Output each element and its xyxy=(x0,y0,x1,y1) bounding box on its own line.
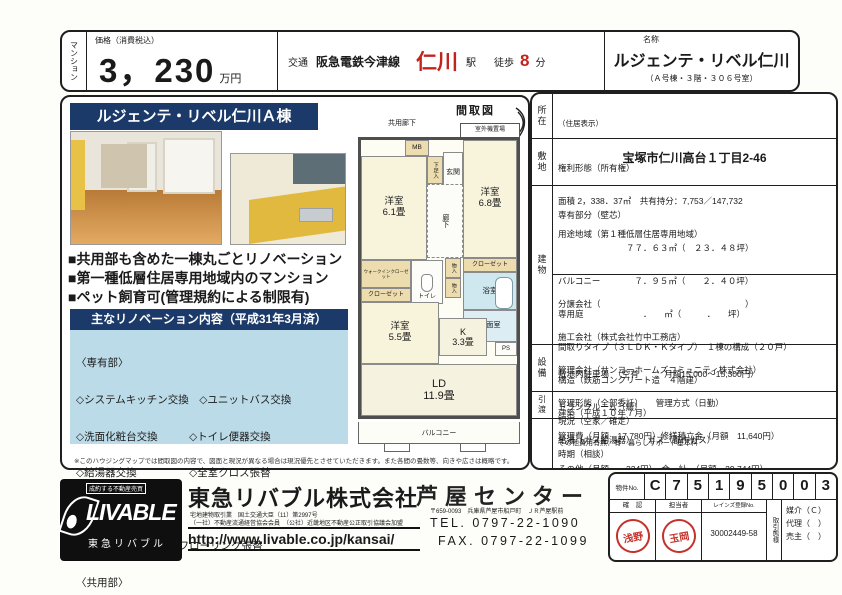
room-hallway: 廊下 xyxy=(427,184,463,258)
footer-company: 東急リバブル株式会社 xyxy=(188,481,418,513)
room-label: クローゼット xyxy=(472,262,508,269)
room-size: 11.9畳 xyxy=(423,390,455,402)
room-closet-b: クローゼット xyxy=(463,258,517,272)
main-left-box: ルジェンテ・リベル仁川Ａ棟 ■共用部も含めた一棟丸ごとリノベーション ■第一種低… xyxy=(60,95,530,470)
price-value: 3，230 xyxy=(99,44,215,92)
room-label: LD xyxy=(432,378,446,390)
floorplan-outline: MB 洋室 6.1畳 下足入 玄関 廊下 洋室 6.8畳 クローゼット 物入 xyxy=(358,137,520,419)
row-location: 所在 （住居表示） 宝塚市仁川高台１丁目2-46 xyxy=(532,94,836,139)
facility-line: エレベータ（ＥＶ有） xyxy=(558,468,831,470)
land-line: 権利形態（所有権） xyxy=(558,163,831,174)
reno-line: ◇洗面化粧台交換 ◇トイレ便器交換 xyxy=(76,431,342,443)
footer-fax: FAX. 0797-22-1099 xyxy=(438,534,589,548)
outdoor-unit-label: 室外機置場 xyxy=(460,123,520,138)
photo-living-wall xyxy=(101,144,147,188)
plan-disclaimer: ※このハウジングマップでは間取図の内容で、図面と現況が異なる場合は現況優先とさせ… xyxy=(74,455,524,465)
property-no-digit: 0 xyxy=(794,474,815,499)
facility-line: 敷地内駐車場 （空有 ：月額15,000～15,300円） xyxy=(558,369,831,380)
bathtub-icon xyxy=(495,277,513,309)
property-no-digit: 5 xyxy=(688,474,709,499)
balcony-notch xyxy=(460,444,486,452)
row-location-label: 所在 xyxy=(532,94,553,138)
property-no-digit: C xyxy=(645,474,666,499)
room-label: クローゼット xyxy=(368,292,404,299)
footer-logo-block: 成約する不動産売買 LIVABLE 東急リバブル xyxy=(60,479,182,561)
balcony-notch xyxy=(384,444,410,452)
remarks-highlight: 広告関係不可 xyxy=(558,467,831,470)
row-building: 建物 専有部分（壁芯） ７７．６３㎡（ ２３．４８坪） バルコニー ７．９５㎡（… xyxy=(532,186,836,345)
property-name-sub: （Ａ号棟・３階・３０６号室） xyxy=(605,73,798,84)
room-label: ウォークインクローゼット xyxy=(363,269,409,279)
mode-column: 取引態様 媒介（Ｃ） 代理（ ） 売主（ ） xyxy=(767,500,836,560)
toilet-icon xyxy=(421,274,433,292)
walk-unit: 分 xyxy=(535,54,545,69)
staff-column: 担当者 玉岡 xyxy=(656,500,702,560)
stamp-row: 確 認 浅野 担当者 玉岡 レインズ登録No. 30002449-58 取引態様… xyxy=(610,500,836,560)
reno-line: 〈共用部〉 xyxy=(76,577,342,589)
building-line: 専有部分（壁芯） xyxy=(558,210,831,221)
feature-item: ■第一種低層住居専用地域内のマンション xyxy=(68,269,342,288)
room-label: トイレ xyxy=(418,294,436,301)
row-handover-label: 引渡 xyxy=(532,392,553,418)
room-kitchen: K 3.3畳 xyxy=(439,318,487,356)
balcony: バルコニー xyxy=(358,422,520,444)
reno-line: ◇給湯器交換 ◇全室クロス張替 xyxy=(76,467,342,479)
room-label: 物入 xyxy=(450,283,456,293)
room-bath: 浴室 xyxy=(463,272,517,310)
rail-line: 阪急電鉄今津線 xyxy=(316,53,400,70)
room-label: K xyxy=(460,327,466,337)
name-label: 名称 xyxy=(643,34,659,45)
room-size: 6.1畳 xyxy=(383,208,406,219)
mode-label: 取引態様 xyxy=(767,500,782,560)
building-line: ７７．６３㎡（ ２３．４８坪） xyxy=(558,243,831,254)
walk-minutes: 8 xyxy=(520,51,529,71)
footer-license2: （一社）不動産流通経営協会会員 （公社）近畿地区不動産公正取引協議会加盟 xyxy=(190,518,403,527)
photo-living-room xyxy=(70,131,222,245)
access-cell: 交通 阪急電鉄今津線 仁川 駅 徒歩 8 分 xyxy=(278,32,604,90)
room-label: PS xyxy=(502,346,510,353)
property-no-digit: 3 xyxy=(816,474,836,499)
logo-main: LIVABLE xyxy=(86,499,176,526)
shared-corridor-label: 共用廊下 xyxy=(388,118,416,128)
real-estate-flyer: マンション 価格（消費税込） 3，230 万円 交通 阪急電鉄今津線 仁川 駅 … xyxy=(0,0,842,595)
remarks-line: その他費用有無：有 暮らしサポート基本料 xyxy=(558,439,831,448)
room-storage-2: 物入 xyxy=(445,278,461,298)
row-remarks-label: 備考 xyxy=(532,419,553,470)
floorplan-title: 間取図 xyxy=(456,102,495,118)
room-toilet: トイレ xyxy=(411,260,443,304)
location-note: （住居表示） xyxy=(558,118,831,129)
room-shoebox: 下足入 xyxy=(427,156,443,184)
room-closet-a: クローゼット xyxy=(361,288,411,302)
reins-column: レインズ登録No. 30002449-58 xyxy=(702,500,767,560)
confirm-header: 確 認 xyxy=(610,500,655,513)
property-no-digit: 1 xyxy=(709,474,730,499)
category-tab: マンション xyxy=(62,32,87,90)
logo-sub: 東急リバブル xyxy=(88,535,166,550)
confirm-stamp: 浅野 xyxy=(613,516,652,555)
building-spec-cell: 専有部分（壁芯） ７７．６３㎡（ ２３．４８坪） バルコニー ７．９５㎡（ ２．… xyxy=(553,186,836,275)
room-size: 6.8畳 xyxy=(479,199,502,210)
room-ps: PS xyxy=(495,342,517,356)
feature-list: ■共用部も含めた一棟丸ごとリノベーション ■第一種低層住居専用地域内のマンション… xyxy=(68,250,342,307)
photo-living-shelf xyxy=(71,140,85,210)
room-label: 下足入 xyxy=(432,162,438,179)
row-remarks: 備考 その他費用有無：有 暮らしサポート基本料 広告関係不可 【電波障害調査に関… xyxy=(532,419,836,470)
room-bedroom-a: 洋室 6.1畳 xyxy=(361,156,427,260)
room-label: 玄関 xyxy=(446,169,460,177)
row-building-label: 建物 xyxy=(532,186,553,344)
station-suffix: 駅 xyxy=(466,54,476,69)
building-title-bar: ルジェンテ・リベル仁川Ａ棟 xyxy=(70,103,318,130)
footer-office-postal: 〒659-0093 兵庫県芦屋市船戸町 ＪＲ芦屋駅前 xyxy=(430,506,563,515)
room-storage-1: 物入 xyxy=(445,258,461,278)
feature-item: ■ペット飼育可(管理規約による制限有) xyxy=(68,288,342,307)
reins-header: レインズ登録No. xyxy=(702,500,766,513)
footer-tel: TEL. 0797-22-1090 xyxy=(430,516,580,530)
name-cell: 名称 ルジェンテ・リベル仁川 （Ａ号棟・３階・３０６号室） xyxy=(604,32,798,90)
room-label: 物入 xyxy=(450,263,456,273)
confirm-column: 確 認 浅野 xyxy=(610,500,656,560)
price-unit: 万円 xyxy=(219,70,241,86)
logo-tagline: 成約する不動産売買 xyxy=(86,483,146,494)
building-title: ルジェンテ・リベル仁川Ａ棟 xyxy=(96,108,291,125)
reno-line: 〈専有部〉 xyxy=(76,357,342,369)
floorplan: 間取図 共用廊下 室外機置場 MB 洋室 6.1畳 下足入 玄関 廊下 xyxy=(354,102,526,454)
property-no-digit: 9 xyxy=(730,474,751,499)
reins-no: 30002449-58 xyxy=(710,529,757,538)
photo-kitchen-window xyxy=(293,154,345,184)
access-label: 交通 xyxy=(288,54,308,69)
mode-option: 媒介（Ｃ） xyxy=(786,504,826,517)
room-label: MB xyxy=(412,144,422,151)
photo-living-window xyxy=(163,138,215,194)
property-no-label: 物件No. xyxy=(610,474,645,499)
property-no-digit: 5 xyxy=(752,474,773,499)
photo-kitchen-sink xyxy=(299,208,333,222)
row-handover: 引渡 現況（空家／確定） 時期（相談） xyxy=(532,392,836,419)
property-no-row: 物件No. C 7 5 1 9 5 0 0 3 xyxy=(610,474,836,500)
room-size: 3.3畳 xyxy=(452,337,474,347)
mode-option: 代理（ ） xyxy=(786,517,826,530)
room-ld: LD 11.9畳 xyxy=(361,364,517,416)
property-no-digit: 7 xyxy=(666,474,687,499)
building-line: 施工会社（株式会社竹中工務店） xyxy=(558,332,831,343)
property-no-digit: 0 xyxy=(773,474,794,499)
mode-option: 売主（ ） xyxy=(786,530,826,543)
stamp-box: 物件No. C 7 5 1 9 5 0 0 3 確 認 浅野 担当者 玉岡 レイ… xyxy=(608,472,838,562)
room-bedroom-c: 洋室 5.5畳 xyxy=(361,302,439,364)
row-land-label: 敷地 xyxy=(532,139,553,185)
room-label: 廊下 xyxy=(441,214,449,228)
property-name: ルジェンテ・リベル仁川 xyxy=(605,47,798,71)
price-cell: 価格（消費税込） 3，230 万円 xyxy=(87,32,278,90)
staff-stamp: 玉岡 xyxy=(659,516,698,555)
building-line: 分譲会社（ ） xyxy=(558,299,831,310)
row-facilities: 設備 敷地内駐車場 （空有 ：月額15,000～15,300円） トランクルーム… xyxy=(532,345,836,392)
header-box: マンション 価格（消費税込） 3，230 万円 交通 阪急電鉄今津線 仁川 駅 … xyxy=(60,30,800,92)
footer-url: http://www.livable.co.jp/kansai/ xyxy=(188,527,420,551)
renovation-title-bar: 主なリノベーション内容（平成31年3月済） xyxy=(70,309,348,330)
row-land: 敷地 権利形態（所有権） 面積 2，338．37㎡ 共有持分：7,753／147… xyxy=(532,139,836,186)
reno-line: ◇システムキッチン交換 ◇ユニットバス交換 xyxy=(76,394,342,406)
row-facilities-label: 設備 xyxy=(532,345,553,391)
details-box: 所在 （住居表示） 宝塚市仁川高台１丁目2-46 敷地 権利形態（所有権） 面積… xyxy=(530,92,838,470)
renovation-title: 主なリノベーション内容（平成31年3月済） xyxy=(91,312,327,326)
walk-label: 徒歩 xyxy=(494,54,514,69)
staff-header: 担当者 xyxy=(656,500,701,513)
renovation-box: 〈専有部〉 ◇システムキッチン交換 ◇ユニットバス交換 ◇洗面化粧台交換 ◇トイ… xyxy=(70,330,348,444)
room-label: バルコニー xyxy=(422,428,457,438)
room-size: 5.5畳 xyxy=(389,333,412,344)
room-mb: MB xyxy=(405,140,429,156)
category-label: マンション xyxy=(69,41,80,81)
feature-item: ■共用部も含めた一棟丸ごとリノベーション xyxy=(68,250,342,269)
station-name: 仁川 xyxy=(416,46,458,76)
room-bedroom-b: 洋室 6.8畳 xyxy=(463,140,517,258)
photo-kitchen xyxy=(230,153,346,245)
room-wic: ウォークインクローゼット xyxy=(361,260,411,288)
